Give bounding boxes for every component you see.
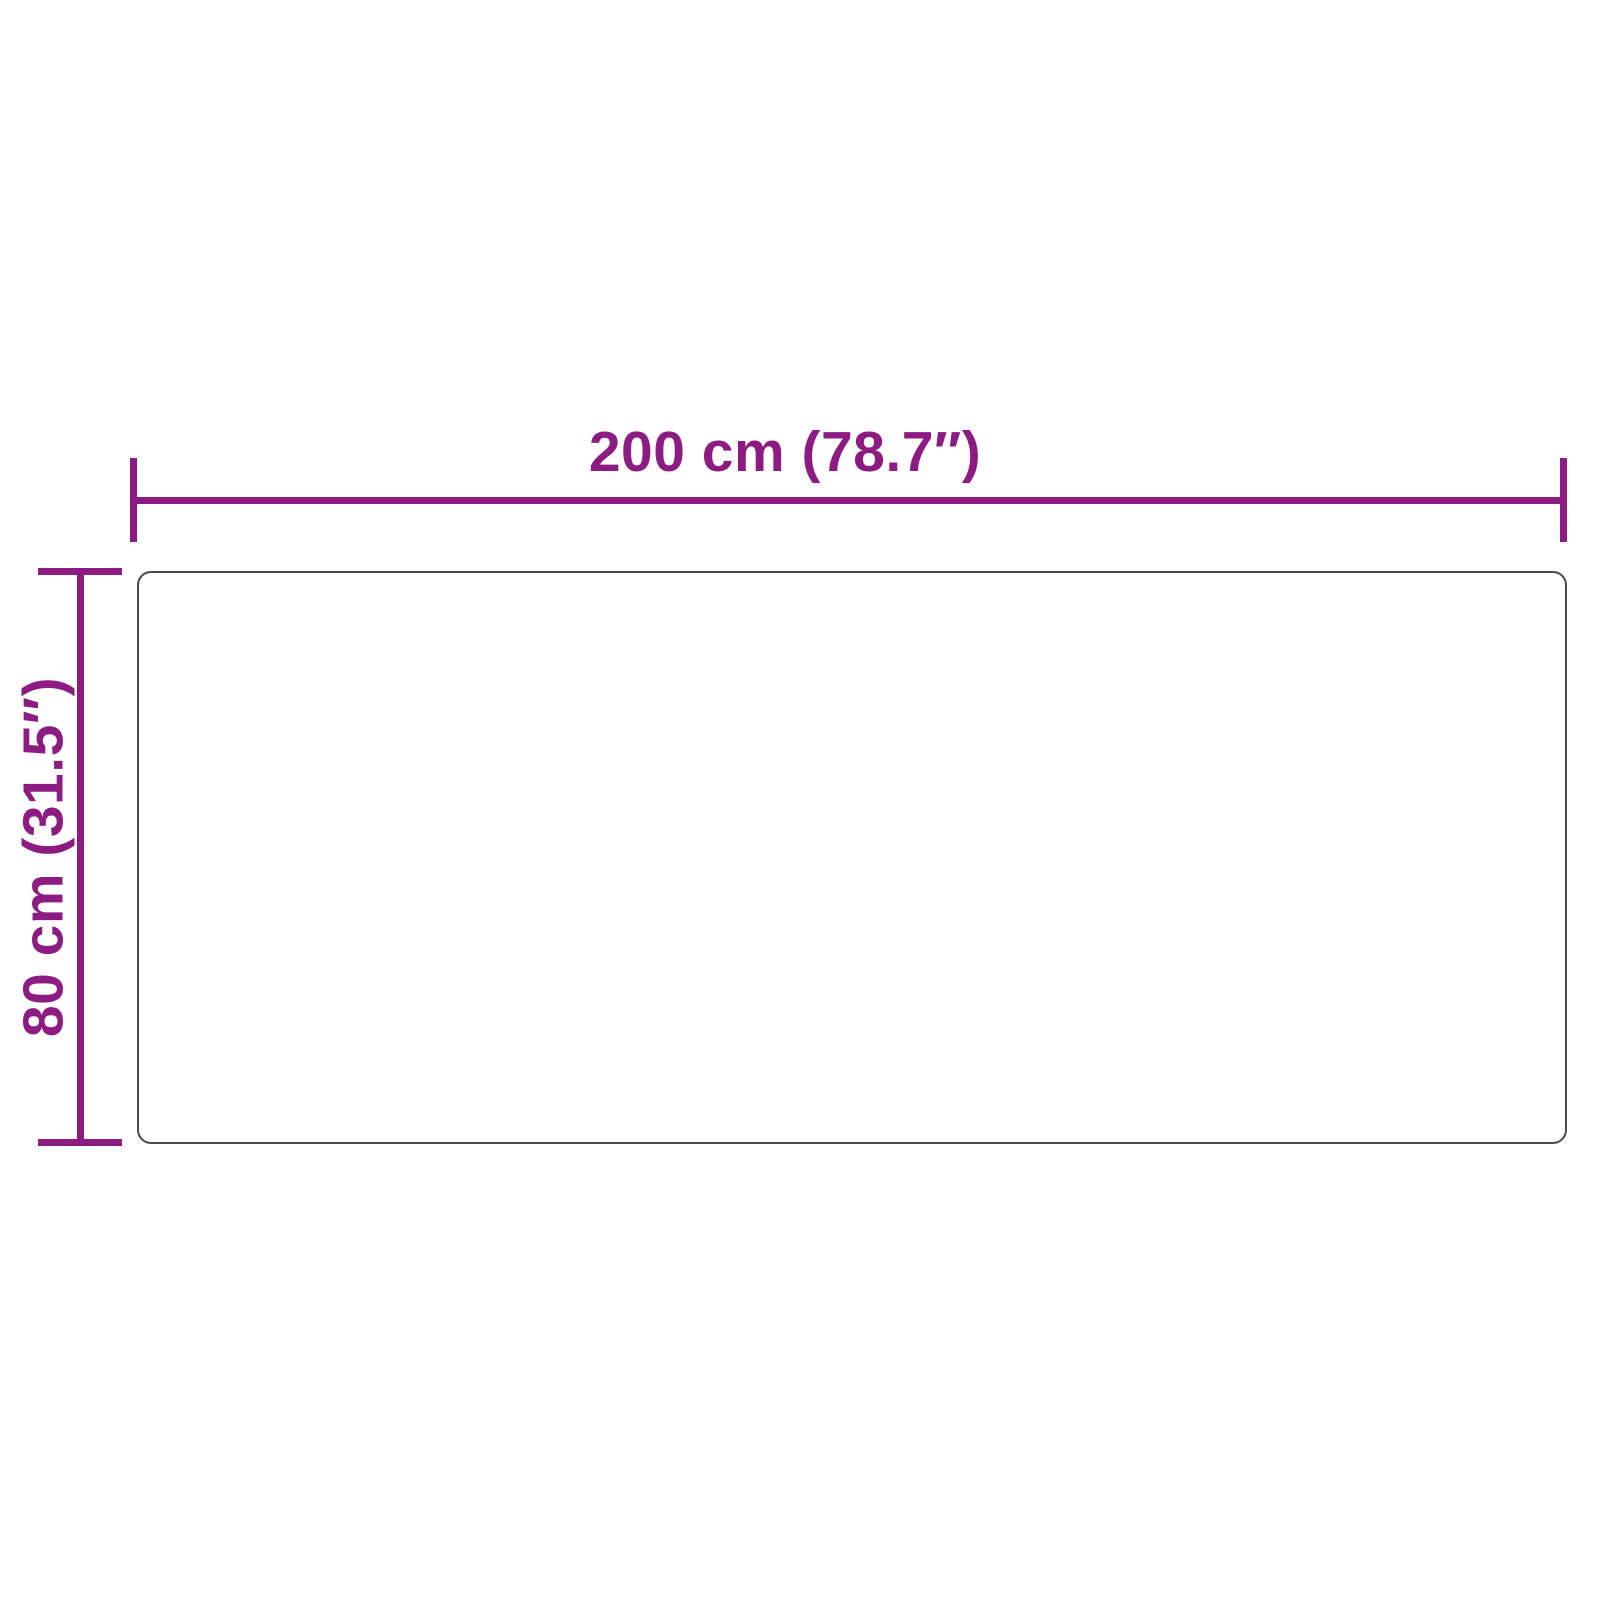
width-dimension-label: 200 cm (78.7″) <box>589 424 981 481</box>
height-dimension-label: 80 cm (31.5″) <box>16 677 73 1037</box>
width-dimension-cap-left <box>130 458 137 542</box>
width-dimension-line <box>133 497 1564 504</box>
height-dimension-cap-bottom <box>38 1139 122 1146</box>
height-dimension-cap-top <box>38 568 122 575</box>
dimension-diagram: 200 cm (78.7″) 80 cm (31.5″) <box>0 0 1600 1600</box>
product-outline <box>137 571 1567 1144</box>
width-dimension-cap-right <box>1560 458 1567 542</box>
height-dimension-line <box>77 571 84 1143</box>
